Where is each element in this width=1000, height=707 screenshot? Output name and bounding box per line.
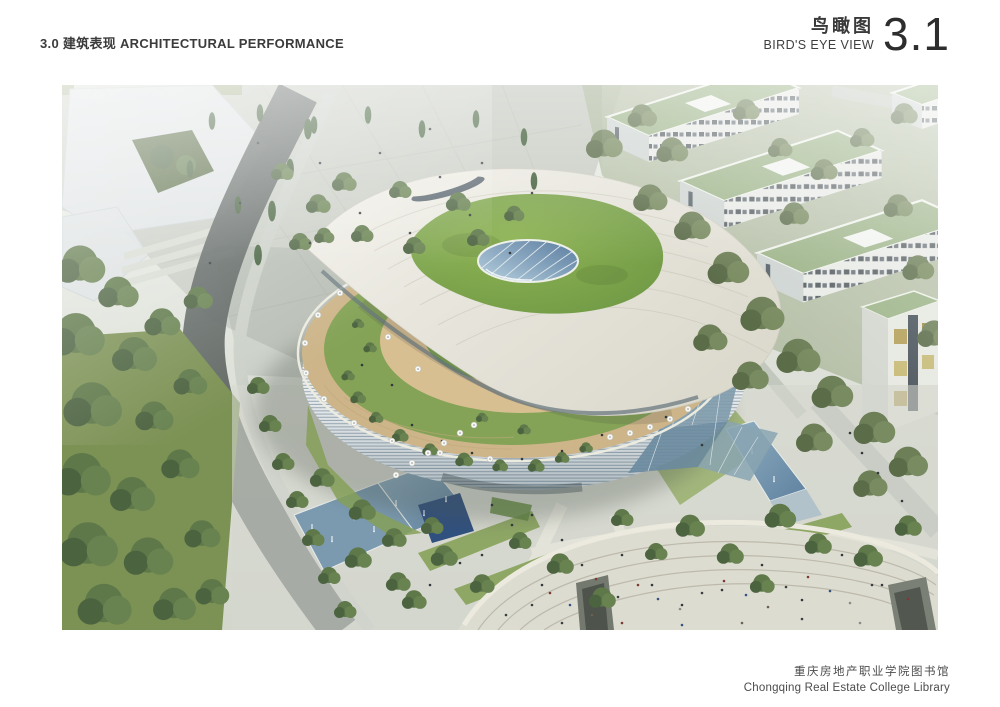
page-header: 鸟瞰图 BIRD'S EYE VIEW 3.1 (764, 14, 950, 55)
section-label: 3.0 建筑表现 ARCHITECTURAL PERFORMANCE (40, 33, 344, 52)
page-title-english: BIRD'S EYE VIEW (764, 38, 875, 52)
project-name-chinese: 重庆房地产职业学院图书馆 (744, 663, 950, 679)
birdseye-rendering: Aerial bird's-eye rendering of the Chong… (62, 85, 938, 630)
project-caption: 重庆房地产职业学院图书馆 Chongqing Real Estate Colle… (744, 663, 950, 694)
presentation-page: 3.0 建筑表现 ARCHITECTURAL PERFORMANCE 鸟瞰图 B… (0, 0, 1000, 707)
project-name-english: Chongqing Real Estate College Library (744, 682, 950, 694)
rendering-svg: Aerial bird's-eye rendering of the Chong… (62, 85, 938, 630)
page-number: 3.1 (883, 14, 950, 55)
page-title: 鸟瞰图 BIRD'S EYE VIEW (764, 14, 875, 52)
page-title-chinese: 鸟瞰图 (764, 17, 875, 36)
